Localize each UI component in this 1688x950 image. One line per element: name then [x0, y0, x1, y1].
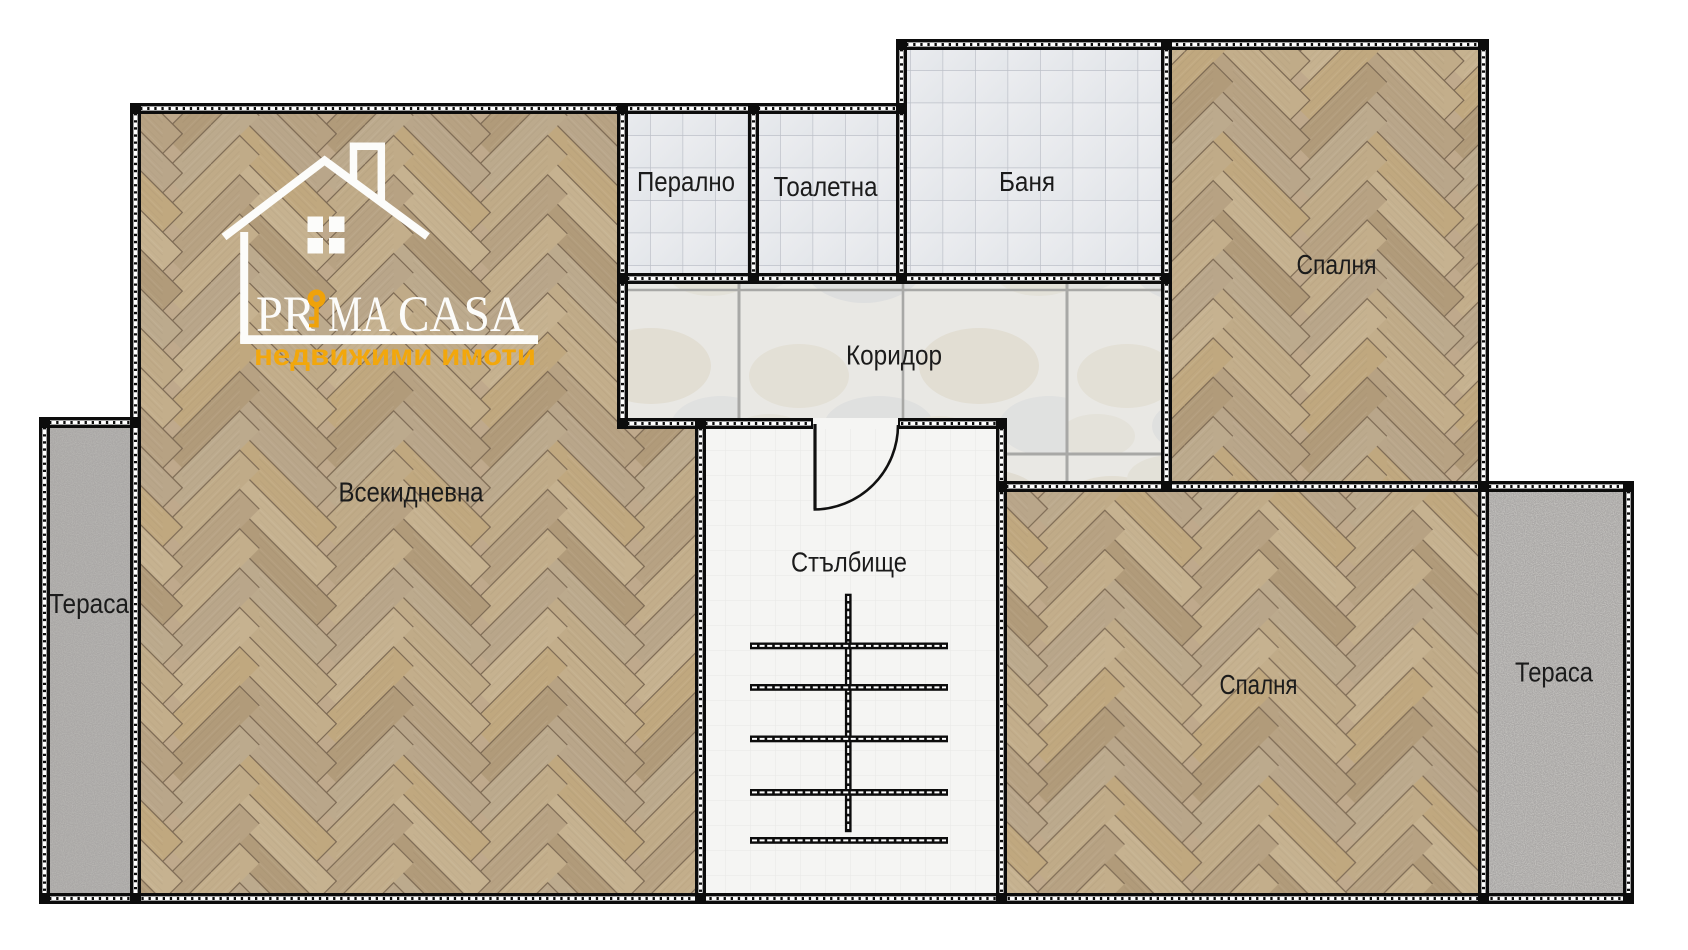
svg-text:Перално: Перално	[637, 166, 735, 197]
svg-text:MA: MA	[328, 287, 390, 343]
svg-text:Стълбище: Стълбище	[791, 547, 907, 578]
svg-text:Спалня: Спалня	[1297, 249, 1377, 280]
svg-text:Спалня: Спалня	[1220, 669, 1298, 700]
svg-text:Тераса: Тераса	[49, 588, 129, 619]
svg-text:Всекидневна: Всекидневна	[339, 477, 484, 508]
svg-text:Тоалетна: Тоалетна	[774, 171, 878, 202]
svg-text:PR: PR	[256, 287, 315, 343]
svg-text:Баня: Баня	[999, 166, 1055, 197]
svg-text:недвижими имоти: недвижими имоти	[254, 339, 536, 372]
svg-text:Коридор: Коридор	[846, 340, 942, 371]
svg-text:CASA: CASA	[398, 287, 524, 343]
svg-text:Тераса: Тераса	[1515, 657, 1593, 688]
